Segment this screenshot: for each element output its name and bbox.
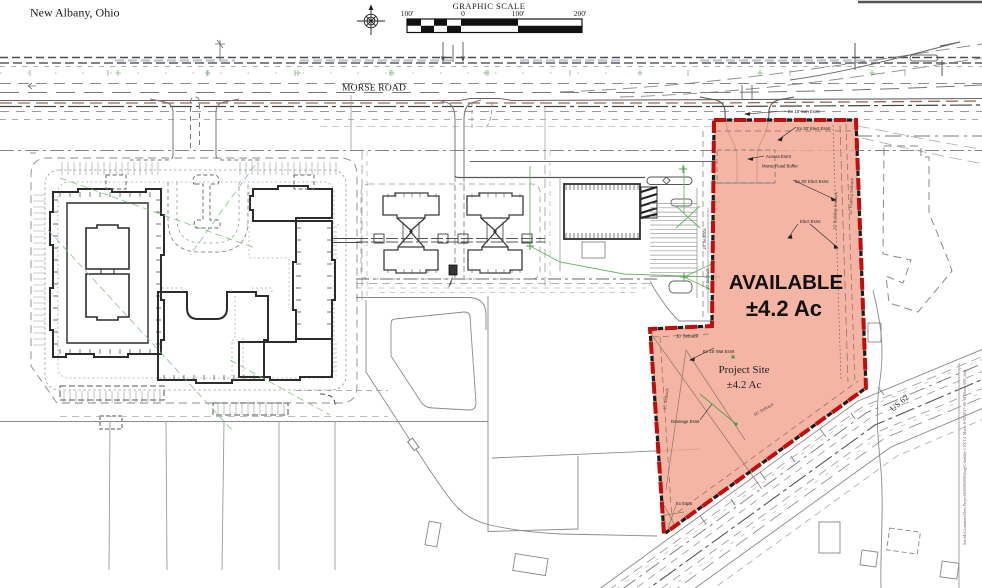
svg-text:Elect Esmt: Elect Esmt xyxy=(800,219,821,224)
svg-text:10' Setback: 10' Setback xyxy=(705,267,710,290)
svg-text:200': 200' xyxy=(574,9,587,18)
svg-text:Ex 15' Wat Esmt: Ex 15' Wat Esmt xyxy=(703,349,735,354)
svg-text:15' Setback: 15' Setback xyxy=(702,227,707,250)
svg-text:MORSE ROAD: MORSE ROAD xyxy=(342,84,406,94)
svg-text:AVAILABLE: AVAILABLE xyxy=(729,271,843,294)
svg-text:Project Site: Project Site xyxy=(718,364,769,376)
svg-text:New Albany, Ohio: New Albany, Ohio xyxy=(30,6,120,20)
svg-text:100': 100' xyxy=(401,9,414,18)
svg-text:Access Esmt: Access Esmt xyxy=(766,154,792,159)
svg-text:±4.2 Ac: ±4.2 Ac xyxy=(727,379,762,391)
svg-text:Morse Road Buffer: Morse Road Buffer xyxy=(762,164,799,169)
svg-text:Ex Esmt: Ex Esmt xyxy=(676,501,693,506)
svg-text:±4.2 Ac: ±4.2 Ac xyxy=(746,296,822,321)
svg-text:100': 100' xyxy=(512,9,525,18)
svg-text:Drainage Esmt: Drainage Esmt xyxy=(671,419,700,424)
svg-text:10' Setback: 10' Setback xyxy=(676,334,699,339)
svg-text:0: 0 xyxy=(461,9,465,18)
svg-text:Ex 20' Elect Esmt: Ex 20' Elect Esmt xyxy=(797,126,831,131)
svg-text:Ex 15' San Esmt: Ex 15' San Esmt xyxy=(788,109,820,114)
svg-text:SawMcLconstructMors Project\62: SawMcLconstructMors Project\620095000\dw… xyxy=(962,370,967,545)
